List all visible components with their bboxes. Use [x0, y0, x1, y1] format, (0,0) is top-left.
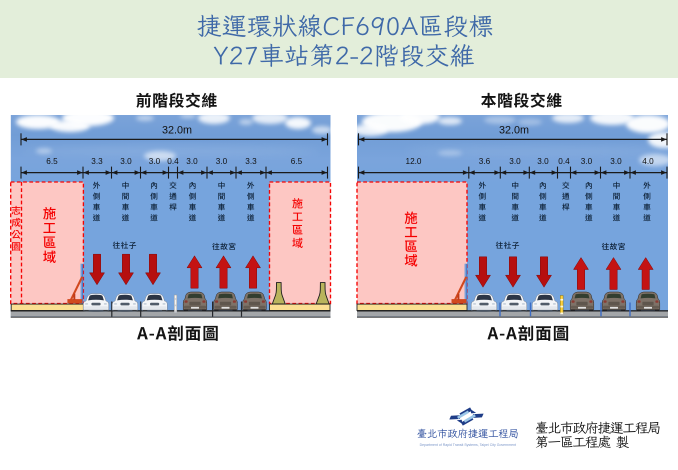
svg-text:3.0: 3.0: [509, 157, 521, 166]
svg-text:0.4: 0.4: [558, 157, 570, 166]
svg-text:4.0: 4.0: [642, 157, 654, 166]
svg-text:3.0: 3.0: [581, 157, 593, 166]
svg-text:3.3: 3.3: [245, 157, 257, 166]
svg-text:Department of Rapid Transit Sy: Department of Rapid Transit Systems, Tai…: [420, 443, 516, 447]
svg-text:3.0: 3.0: [216, 157, 228, 166]
svg-text:12.0: 12.0: [406, 157, 422, 166]
svg-text:0.4: 0.4: [167, 157, 179, 166]
svg-text:3.3: 3.3: [91, 157, 103, 166]
svg-text:3.0: 3.0: [537, 157, 549, 166]
svg-text:32.0m: 32.0m: [162, 125, 192, 137]
svg-text:3.0: 3.0: [149, 157, 161, 166]
svg-text:6.5: 6.5: [291, 157, 303, 166]
svg-text:3.0: 3.0: [120, 157, 132, 166]
svg-text:32.0m: 32.0m: [499, 125, 529, 137]
svg-text:3.0: 3.0: [610, 157, 622, 166]
svg-text:3.0: 3.0: [186, 157, 198, 166]
svg-text:6.5: 6.5: [46, 157, 58, 166]
svg-text:3.6: 3.6: [479, 157, 491, 166]
